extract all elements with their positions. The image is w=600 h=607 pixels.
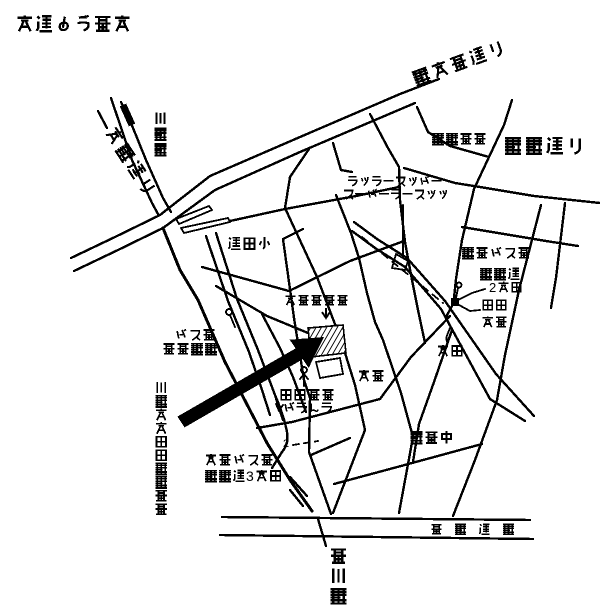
svg-text:2: 2 <box>283 438 289 450</box>
svg-text:2: 2 <box>489 280 496 295</box>
svg-text:3: 3 <box>246 468 254 484</box>
